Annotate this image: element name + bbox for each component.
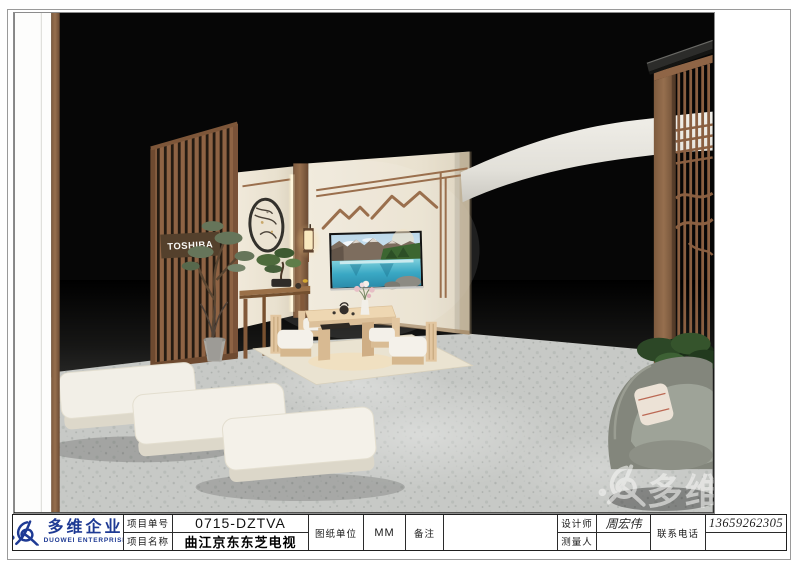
bench-cushion [222,406,378,483]
left-wood-pillar [51,13,59,512]
render-scene: TOSHIBA [13,12,715,514]
remarks-value [443,515,557,550]
phone-label: 联系电话 [650,515,705,550]
surveyor-label: 测量人 [557,533,596,551]
company-logo: 多维企业 DUOWEI ENTERPRISE [13,515,123,550]
remarks-label: 备注 [405,515,443,550]
project-name-value: 曲江京东东芝电视 [172,533,308,551]
project-no-label: 项目单号 [123,515,172,533]
tv [329,229,423,291]
drawing-unit-label: 图纸单位 [308,515,363,550]
company-name-en: DUOWEI ENTERPRISE [44,538,123,545]
project-name-label: 项目名称 [123,533,172,551]
title-block: 多维企业 DUOWEI ENTERPRISE 项目单号 0715-DZTVA 项… [12,514,787,551]
surveyor-value [596,533,650,551]
designer-value: 周宏伟 [596,515,650,533]
designer-label: 设计师 [557,515,596,533]
company-name-cn: 多维企业 [48,520,124,536]
drawing-unit-value: MM [363,515,405,550]
bird-ornament [303,279,308,283]
drawing-sheet: TOSHIBA [0,0,800,566]
phone-value-empty [705,533,786,551]
company-logo-mark [13,519,41,546]
watermark-text: 多维企 [647,471,715,512]
project-no-value: 0715-DZTVA [172,515,308,533]
left-white-panel [14,13,51,512]
phone-value: 13659262305 [705,515,786,533]
slat-screen: TOSHIBA [151,124,238,367]
